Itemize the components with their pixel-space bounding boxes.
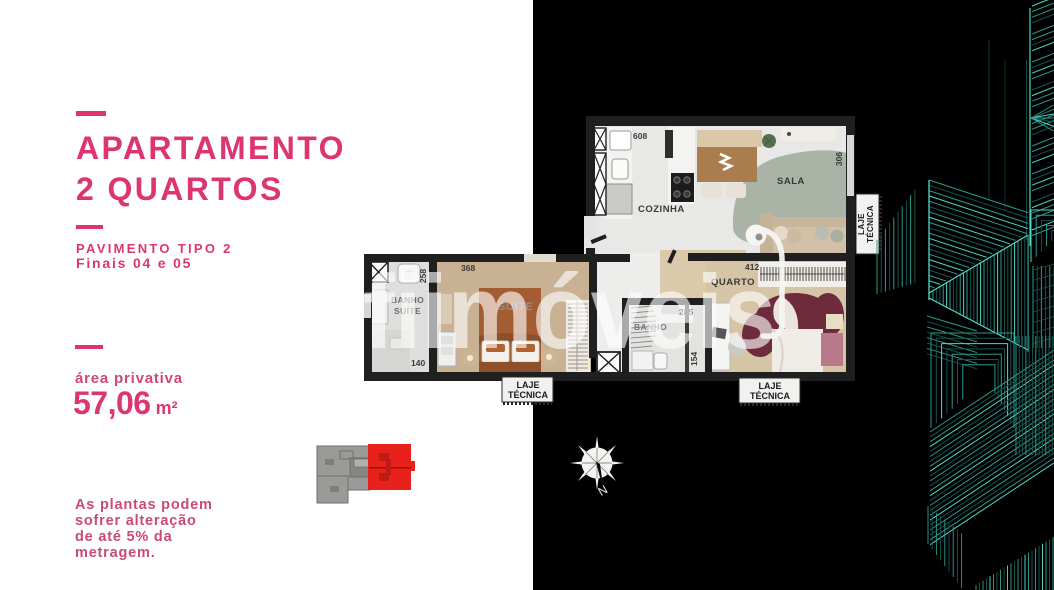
svg-text:LAJE: LAJE (857, 213, 866, 235)
svg-text:TÉCNICA: TÉCNICA (750, 391, 790, 401)
svg-text:LAJE: LAJE (758, 381, 781, 391)
svg-text:SALA: SALA (777, 176, 805, 187)
svg-text:fiimóveis: fiimóveis (363, 254, 776, 371)
svg-text:TÉCNICA: TÉCNICA (508, 390, 548, 400)
svg-text:306: 306 (834, 152, 844, 166)
svg-text:TÉCNICA: TÉCNICA (866, 205, 875, 243)
svg-text:LAJE: LAJE (516, 380, 539, 390)
svg-text:COZINHA: COZINHA (638, 204, 685, 215)
svg-text:608: 608 (633, 131, 647, 141)
svg-text:N: N (596, 482, 611, 498)
